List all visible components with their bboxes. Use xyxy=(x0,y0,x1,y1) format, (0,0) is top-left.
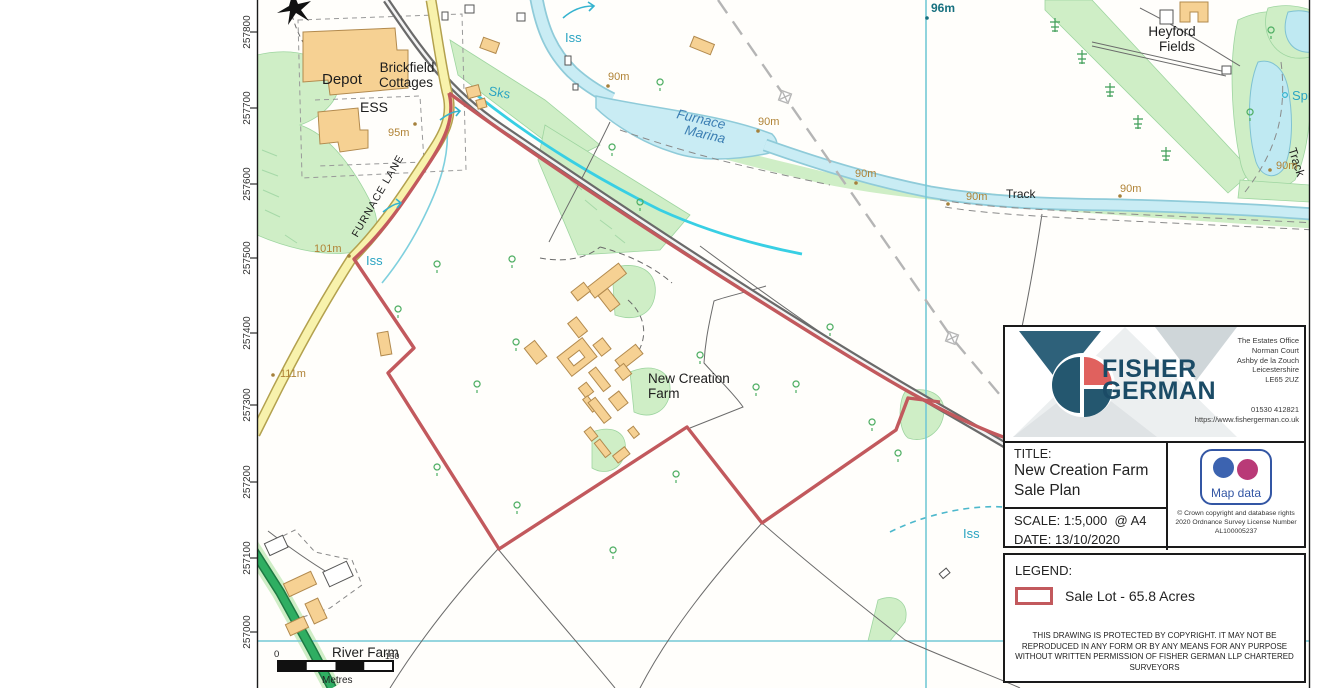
address-line: Leicestershire xyxy=(1237,365,1299,375)
label-iss-lane: Iss xyxy=(366,253,383,268)
address-line: Norman Court xyxy=(1237,346,1299,356)
scale-bar-end: 150 xyxy=(385,651,399,661)
label-iss-top: Iss xyxy=(565,30,582,45)
spot-90m-d: 90m xyxy=(966,191,987,203)
legend-heading: LEGEND: xyxy=(1015,563,1294,578)
label-heyford-2: Fields xyxy=(1159,39,1195,54)
spot-90m-e: 90m xyxy=(1120,183,1141,195)
brand-phone: 01530 412821 xyxy=(1195,405,1299,415)
brand-contact: 01530 412821 https://www.fishergerman.co… xyxy=(1195,405,1299,425)
date-label: DATE: xyxy=(1014,532,1051,547)
address-line: Ashby de la Zouch xyxy=(1237,356,1299,366)
brand-address: The Estates Office Norman Court Ashby de… xyxy=(1237,336,1299,385)
spot-101m: 101m xyxy=(314,243,342,255)
northing-257200: 257200 xyxy=(242,465,253,499)
spot-95m: 95m xyxy=(388,127,409,139)
copyright-notice: THIS DRAWING IS PROTECTED BY COPYRIGHT. … xyxy=(1015,631,1294,674)
northing-257800: 257800 xyxy=(242,15,253,49)
scale-bar-units: Metres xyxy=(322,675,353,686)
brand-name: FISHER GERMAN xyxy=(1102,359,1216,402)
northing-257700: 257700 xyxy=(242,91,253,125)
date-row: DATE: 13/10/2020 xyxy=(1014,531,1166,550)
os-logo-s-icon xyxy=(1235,457,1260,482)
northing-257000: 257000 xyxy=(242,615,253,649)
date-value: 13/10/2020 xyxy=(1055,532,1120,547)
scale-bar-start: 0 xyxy=(274,649,279,660)
spot-90m-b: 90m xyxy=(758,116,779,128)
legend-block: LEGEND: Sale Lot - 65.8 Acres THIS DRAWI… xyxy=(1003,553,1306,683)
spot-90m-f: 90m xyxy=(1276,160,1297,172)
scale-date-cell: SCALE: 1:5,000 @ A4 DATE: 13/10/2020 xyxy=(1005,509,1168,550)
label-ess: ESS xyxy=(360,99,388,115)
scale-value: 1:5,000 xyxy=(1064,513,1107,528)
address-line: The Estates Office xyxy=(1237,336,1299,346)
northing-257500: 257500 xyxy=(242,241,253,275)
label-farm-1: New Creation xyxy=(648,371,730,386)
title-block: FISHER GERMAN The Estates Office Norman … xyxy=(1003,325,1306,548)
scale-row: SCALE: 1:5,000 @ A4 xyxy=(1014,512,1166,531)
northing-257600: 257600 xyxy=(242,167,253,201)
os-copyright: © Crown copyright and database rights 20… xyxy=(1170,510,1302,536)
plan-title-line1: New Creation Farm xyxy=(1014,461,1166,481)
northing-labels: 257800 257700 257600 257500 257400 25730… xyxy=(242,15,253,649)
os-cell: Map data © Crown copyright and database … xyxy=(1168,443,1304,550)
northing-257400: 257400 xyxy=(242,316,253,350)
spot-111m: 111m xyxy=(280,368,306,380)
title-cell: TITLE: New Creation Farm Sale Plan xyxy=(1005,443,1168,509)
brand-website[interactable]: https://www.fishergerman.co.uk xyxy=(1195,415,1299,425)
label-brickfield-2: Cottages xyxy=(379,75,433,90)
brand-panel: FISHER GERMAN The Estates Office Norman … xyxy=(1005,327,1304,443)
brand-word-2: GERMAN xyxy=(1102,381,1216,403)
title-label: TITLE: xyxy=(1014,447,1166,461)
spot-90m-a: 90m xyxy=(608,71,629,83)
os-map-data-logo: Map data xyxy=(1200,449,1272,505)
scale-label: SCALE: xyxy=(1014,513,1060,528)
sale-lot-label: Sale Lot - 65.8 Acres xyxy=(1065,588,1195,604)
northing-257100: 257100 xyxy=(242,541,253,575)
os-caption: Map data xyxy=(1202,486,1270,500)
label-track-mid: Track xyxy=(1006,187,1037,201)
sale-plan-document: Depot Brickfield Cottages ESS FURNACE LA… xyxy=(0,0,1336,688)
label-depot: Depot xyxy=(322,71,363,88)
northing-257300: 257300 xyxy=(242,388,253,422)
label-heyford-1: Heyford xyxy=(1148,24,1195,39)
spot-96m: 96m xyxy=(931,1,955,15)
label-iss-right: Iss xyxy=(963,526,980,541)
label-farm-2: Farm xyxy=(648,386,680,401)
address-line: LE65 2UZ xyxy=(1237,375,1299,385)
os-logo-o-icon xyxy=(1211,455,1236,480)
legend-item-sale-lot: Sale Lot - 65.8 Acres xyxy=(1015,587,1294,605)
scale-sheet: @ A4 xyxy=(1114,513,1146,528)
spot-90m-c: 90m xyxy=(855,168,876,180)
label-brickfield-1: Brickfield xyxy=(380,60,435,75)
plan-title-line2: Sale Plan xyxy=(1014,481,1166,501)
sale-lot-swatch-icon xyxy=(1015,587,1053,605)
